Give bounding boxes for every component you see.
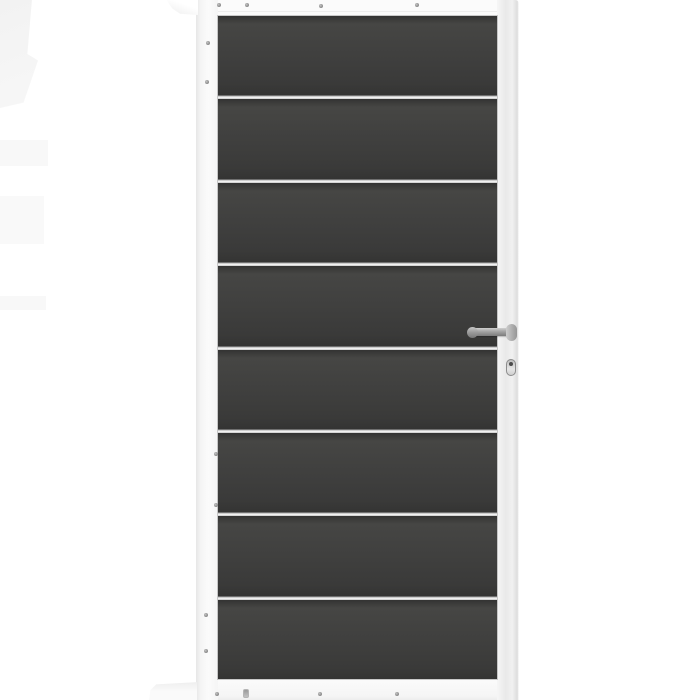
gate-panel <box>218 600 497 679</box>
product-photo <box>0 0 700 700</box>
screw <box>214 452 218 456</box>
screw <box>395 692 399 696</box>
gate-panel <box>218 16 497 95</box>
screw <box>214 503 218 507</box>
gate-panel <box>218 433 497 512</box>
screw <box>205 80 209 84</box>
gate-panel <box>218 350 497 429</box>
photo-artifact <box>0 196 44 244</box>
lock-cylinder <box>506 359 516 376</box>
screw <box>243 689 249 698</box>
gate-panel <box>218 99 497 178</box>
photo-artifact <box>0 0 38 108</box>
photo-artifact <box>0 140 48 166</box>
screw <box>217 3 221 7</box>
photo-artifact <box>0 296 46 310</box>
screw <box>204 649 208 653</box>
gate-top-rail <box>196 0 518 16</box>
panel-stack <box>218 16 497 679</box>
screw <box>206 41 210 45</box>
handle-rosette <box>506 324 517 341</box>
gate-left-stile <box>196 0 218 700</box>
gate-panel <box>218 183 497 262</box>
hinge-bracket-bottom <box>149 681 197 700</box>
screw <box>319 4 323 8</box>
screw <box>204 613 208 617</box>
gate-right-stile <box>497 0 519 700</box>
screw <box>415 3 419 7</box>
screw <box>215 692 219 696</box>
screw <box>245 3 249 7</box>
gate-panel <box>218 266 497 345</box>
gate-panel <box>218 516 497 595</box>
hinge-bracket-top <box>167 0 198 15</box>
screw <box>318 692 322 696</box>
